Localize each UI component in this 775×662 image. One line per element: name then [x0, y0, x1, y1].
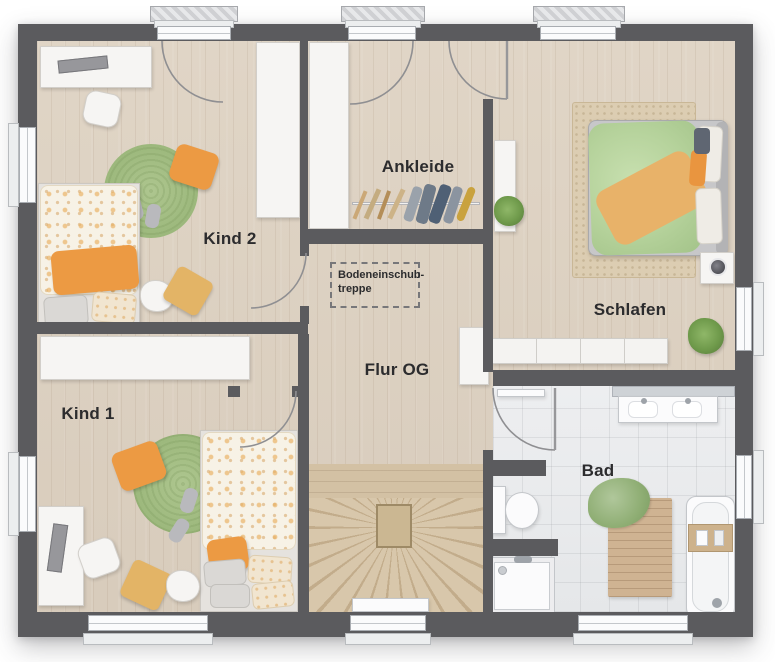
wall-kind2-flur-upper [300, 244, 309, 256]
wall-ankleide-flur [300, 229, 492, 244]
caddy-bottle [714, 530, 724, 546]
wall-kind1-door-jamb [292, 386, 304, 397]
kind1-bed-pillow [210, 584, 250, 608]
wall-kind1-door-jamb [228, 386, 240, 397]
window-schlafen-right [736, 287, 752, 351]
shower-fixture [514, 556, 532, 563]
schlafen-table-lamp [709, 258, 727, 276]
kind1-side-table [166, 570, 200, 602]
bad-faucet [685, 398, 691, 404]
wall-schlafen-bad [493, 370, 735, 386]
room-label-flur: Flur OG [365, 360, 430, 380]
room-label-kind2: Kind 2 [203, 229, 256, 249]
window-stairs-bottom [350, 615, 426, 631]
window-sill [753, 450, 764, 524]
window-kind1-left [19, 456, 36, 532]
shower-tray [489, 557, 555, 615]
stair-newel [376, 504, 412, 548]
window-sill [8, 452, 19, 536]
shower-drain [498, 566, 507, 575]
window-sill [83, 633, 213, 645]
window-sill [753, 282, 764, 356]
window-sill [8, 123, 19, 207]
bad-faucet [641, 398, 647, 404]
wall-kind2-ankleide [300, 41, 308, 231]
caddy-soap [696, 530, 708, 546]
floor-plan: Bodeneinschub- treppe [0, 0, 775, 662]
ankleide-wardrobe [309, 42, 349, 229]
window-sill [345, 633, 431, 645]
schlafen-sideboard [492, 338, 668, 364]
toilet-cistern [492, 486, 506, 534]
window-schlafen-top [540, 26, 616, 40]
potted-plant [688, 318, 724, 354]
bad-towel-rail [497, 389, 545, 397]
window-ankleide-top [348, 26, 416, 40]
schlafen-pillow [695, 188, 723, 245]
wall-kind1-flur [298, 334, 309, 612]
toilet-bowl [505, 492, 539, 529]
schlafen-orange-pillow [689, 149, 707, 186]
wall-toilet-niche-upper [490, 460, 546, 476]
potted-plant [494, 196, 524, 226]
room-label-ankleide: Ankleide [382, 157, 454, 177]
window-bad-right [736, 455, 752, 519]
attic-ladder-label-line2: treppe [338, 282, 412, 296]
bathtub-faucet [712, 598, 722, 608]
window-sill [573, 633, 693, 645]
window-kind2-top [157, 26, 231, 40]
window-kind2-left [19, 127, 36, 203]
kind1-wardrobe [40, 336, 250, 380]
attic-ladder-label-line1: Bodeneinschub- [338, 268, 412, 282]
stair-radiator [352, 598, 429, 612]
wall-kind2-kind1 [37, 322, 308, 334]
kind1-bed-duvet [202, 432, 296, 550]
kind2-bed-blanket [50, 244, 140, 295]
wall-ankleide-schlafen [483, 99, 493, 372]
kind1-bed-pillow [251, 580, 295, 610]
kind2-bed-pillow [91, 291, 137, 325]
window-kind1-bottom [88, 615, 208, 631]
wall-toilet-niche-lower [483, 539, 558, 556]
bathtub-basin [692, 502, 729, 612]
window-bad-bottom [578, 615, 688, 631]
room-label-kind1: Kind 1 [61, 404, 114, 424]
kind2-wardrobe [256, 42, 300, 218]
room-label-schlafen: Schlafen [594, 300, 666, 320]
schlafen-accent-pillow [694, 128, 710, 154]
attic-ladder-annotation: Bodeneinschub- treppe [330, 262, 420, 308]
bathtub-caddy [688, 524, 733, 552]
room-label-bad: Bad [582, 461, 615, 481]
